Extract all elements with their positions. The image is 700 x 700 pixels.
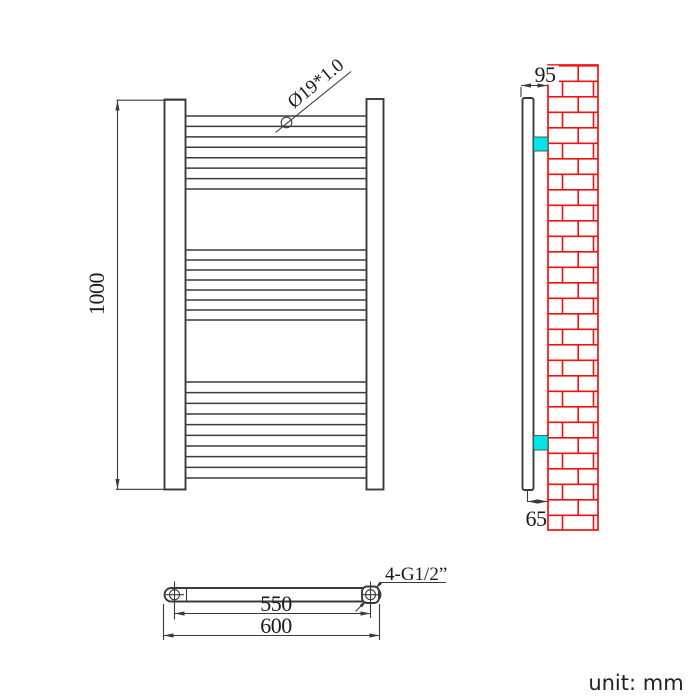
front-rungs — [186, 116, 367, 478]
side-view: 95 65 — [521, 62, 598, 531]
tube-callout: Ø19*1.0 — [276, 55, 352, 133]
bottom-view: 550 600 4-G1/2” — [164, 564, 448, 640]
front-left-rail — [165, 100, 186, 490]
arrow-left-icon — [175, 611, 185, 615]
arrow-left-icon — [164, 633, 174, 637]
brick-wall — [548, 65, 598, 530]
unit-note: unit: mm — [588, 671, 683, 695]
wall-bracket-top — [534, 137, 549, 151]
arrow-right-icon — [361, 611, 371, 615]
arrow-left-icon — [528, 499, 538, 503]
technical-drawing-page: 1000 Ø19*1.0 95 65 — [0, 0, 700, 700]
wall-offset-top-label: 95 — [535, 62, 557, 87]
width-dimension-label: 600 — [260, 613, 292, 638]
arrow-left-icon — [521, 83, 531, 87]
side-profile-tube — [523, 98, 534, 490]
front-view: 1000 Ø19*1.0 — [84, 55, 384, 490]
wall-bracket-bottom — [534, 436, 549, 451]
arrow-down-icon — [115, 479, 119, 489]
wall-offset-bottom-label: 65 — [526, 506, 548, 531]
arrow-right-icon — [538, 499, 548, 503]
tube-callout-label: Ø19*1.0 — [284, 55, 348, 113]
towel-radiator-drawing: 1000 Ø19*1.0 95 65 — [0, 0, 700, 700]
connection-callout-label: 4-G1/2” — [385, 564, 447, 585]
front-right-rail — [367, 99, 384, 490]
height-dimension-label: 1000 — [84, 273, 109, 316]
arrow-right-icon — [370, 633, 380, 637]
arrow-up-icon — [115, 100, 119, 110]
wall-offset-bottom-dimension: 65 — [526, 490, 548, 531]
